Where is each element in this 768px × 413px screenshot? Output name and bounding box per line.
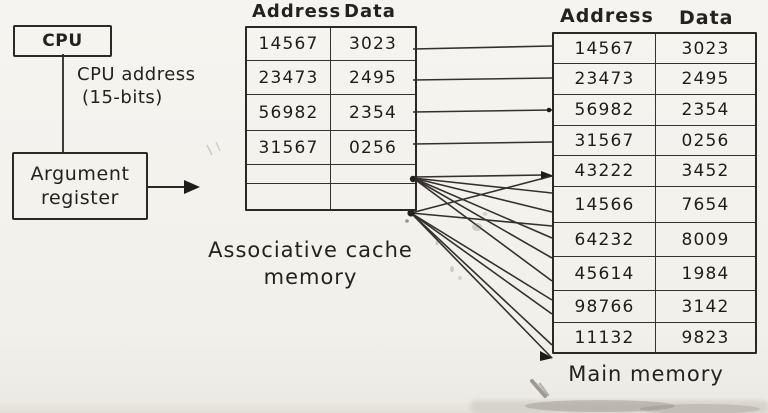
table-row: 234732495 xyxy=(247,61,415,95)
table-row: 145667654 xyxy=(554,187,755,223)
address-cell: 14566 xyxy=(554,187,656,222)
table-row: 145673023 xyxy=(247,28,415,61)
data-cell: 0256 xyxy=(331,131,415,164)
table-row: 456141984 xyxy=(554,257,755,291)
data-cell: 3452 xyxy=(656,156,755,186)
table-row: 642328009 xyxy=(554,223,755,257)
address-cell: 98766 xyxy=(554,291,656,322)
hand-drawn-diagram-page: { "cpu_box": { "label": "CPU" }, "cpu_ad… xyxy=(0,0,768,413)
table-row: 111329823 xyxy=(554,323,755,352)
main-memory-table: 1456730232347324955698223543156702564322… xyxy=(552,32,757,354)
table-row: 315670256 xyxy=(247,131,415,165)
argument-register-label: Argument register xyxy=(30,162,129,210)
table-row: 145673023 xyxy=(554,34,755,64)
address-cell: 14567 xyxy=(247,28,331,60)
table-row: 569822354 xyxy=(247,95,415,131)
cache-caption: Associative cache memory xyxy=(188,237,433,291)
main-memory-address-header: Address xyxy=(560,5,654,27)
table-row: 432223452 xyxy=(554,156,755,187)
data-cell: 9823 xyxy=(656,323,755,352)
argument-register-line1: Argument xyxy=(30,162,129,186)
table-row: 987663142 xyxy=(554,291,755,323)
cache-caption-line1: Associative cache xyxy=(188,237,433,264)
photo-edge-shadow xyxy=(470,400,768,413)
cpu-address-note: CPU address (15-bits) xyxy=(77,63,196,109)
associative-cache-table: 145673023234732495569822354315670256 xyxy=(245,26,417,211)
table-row xyxy=(247,165,415,184)
cpu-address-note-line1: CPU address xyxy=(77,63,196,86)
data-cell: 7654 xyxy=(656,187,755,222)
main-memory-caption: Main memory xyxy=(556,361,736,388)
data-cell: 3023 xyxy=(656,34,755,63)
cache-data-header: Data xyxy=(344,1,396,22)
cache-to-memory-row-lines xyxy=(413,46,552,177)
address-cell: 31567 xyxy=(247,131,331,164)
table-row: 569822354 xyxy=(554,95,755,126)
data-cell xyxy=(331,184,415,209)
data-cell: 3142 xyxy=(656,291,755,322)
data-cell: 2495 xyxy=(331,61,415,94)
table-row: 315670256 xyxy=(554,126,755,156)
address-cell: 64232 xyxy=(554,223,656,256)
data-cell: 8009 xyxy=(656,223,755,256)
address-cell xyxy=(247,165,331,183)
table-row xyxy=(247,184,415,209)
data-cell: 2495 xyxy=(656,64,755,94)
data-cell: 2354 xyxy=(656,95,755,125)
address-cell xyxy=(247,184,331,209)
address-cell: 14567 xyxy=(554,34,656,63)
address-cell: 43222 xyxy=(554,156,656,186)
cpu-address-note-line2: (15-bits) xyxy=(77,86,196,109)
argument-register-line2: register xyxy=(30,186,129,210)
argument-register-box: Argument register xyxy=(12,152,148,220)
address-cell: 56982 xyxy=(554,95,656,125)
data-cell xyxy=(331,165,415,183)
address-cell: 23473 xyxy=(554,64,656,94)
main-memory-data-header: Data xyxy=(679,7,734,29)
address-cell: 23473 xyxy=(247,61,331,94)
cpu-box: CPU xyxy=(13,25,112,57)
address-cell: 31567 xyxy=(554,126,656,155)
cache-caption-line2: memory xyxy=(188,264,433,291)
address-cell: 45614 xyxy=(554,257,656,290)
data-cell: 3023 xyxy=(331,28,415,60)
data-cell: 1984 xyxy=(656,257,755,290)
table-row: 234732495 xyxy=(554,64,755,95)
cache-address-header: Address xyxy=(252,1,341,22)
data-cell: 0256 xyxy=(656,126,755,155)
argument-register-arrow xyxy=(147,180,200,194)
cpu-label: CPU xyxy=(42,31,83,51)
address-cell: 11132 xyxy=(554,323,656,352)
data-cell: 2354 xyxy=(331,95,415,130)
address-cell: 56982 xyxy=(247,95,331,130)
